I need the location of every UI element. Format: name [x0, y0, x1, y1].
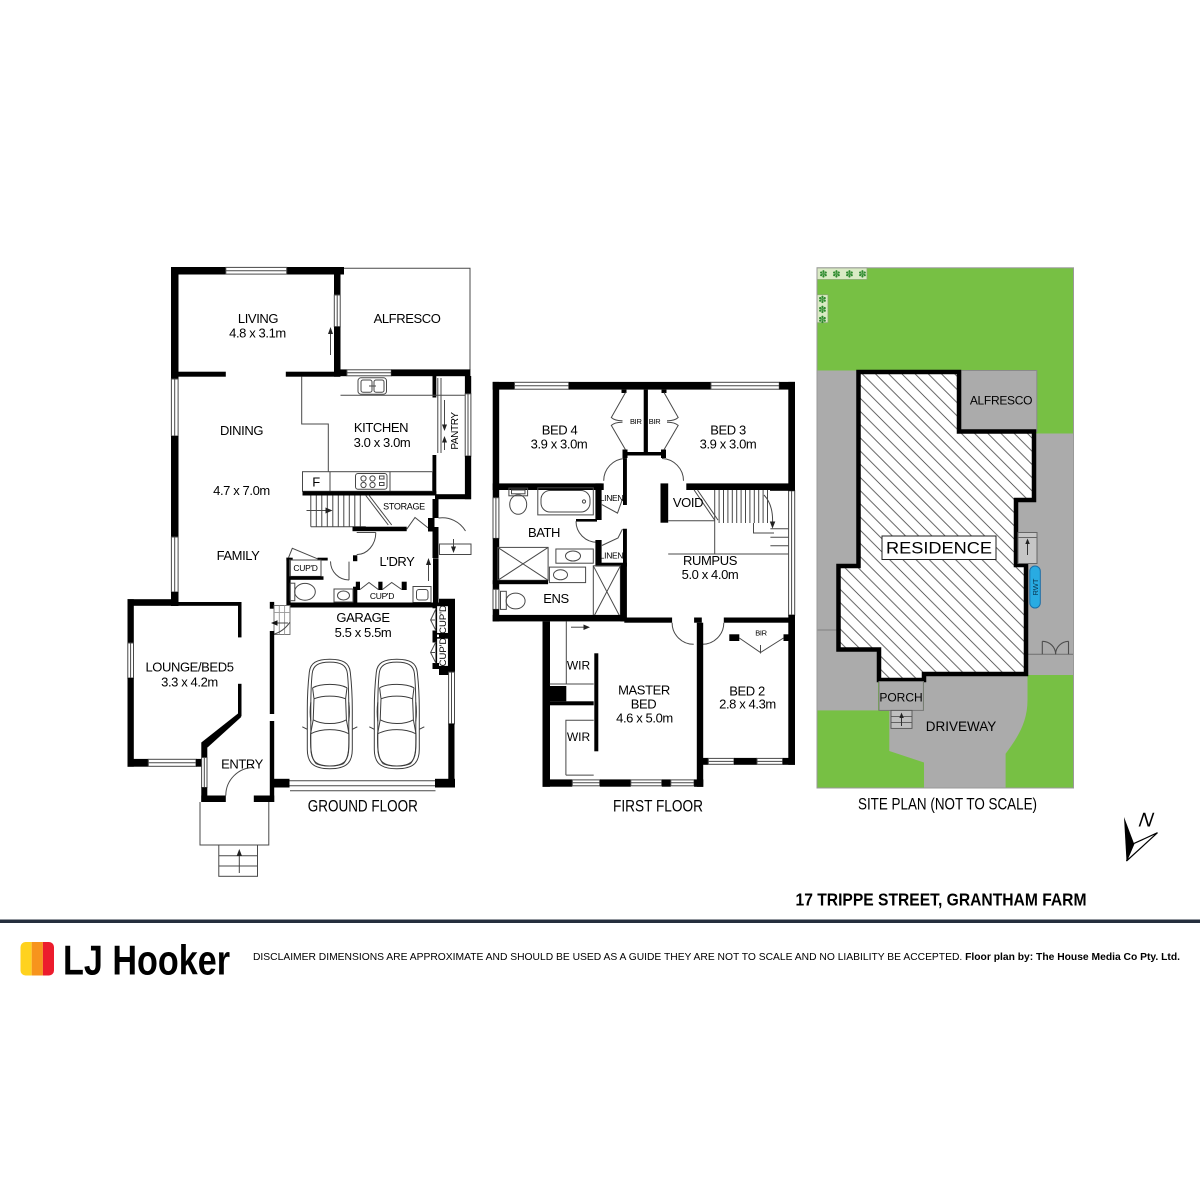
- svg-text:5.5 x 5.5m: 5.5 x 5.5m: [335, 625, 392, 640]
- svg-text:3.9 x 3.0m: 3.9 x 3.0m: [531, 437, 588, 452]
- svg-text:ALFRESCO: ALFRESCO: [374, 311, 441, 326]
- svg-text:BED: BED: [631, 697, 657, 712]
- svg-text:PANTRY: PANTRY: [450, 412, 461, 450]
- svg-text:MASTER: MASTER: [618, 683, 670, 698]
- svg-text:GARAGE: GARAGE: [336, 610, 390, 625]
- svg-text:DINING: DINING: [220, 423, 263, 438]
- svg-text:WIR: WIR: [567, 659, 591, 673]
- svg-text:RESIDENCE: RESIDENCE: [886, 539, 992, 558]
- svg-text:FAMILY: FAMILY: [217, 548, 261, 563]
- svg-text:4.8 x 3.1m: 4.8 x 3.1m: [229, 326, 286, 341]
- svg-text:LOUNGE/BED5: LOUNGE/BED5: [145, 660, 233, 675]
- svg-text:3.9 x 3.0m: 3.9 x 3.0m: [700, 437, 757, 452]
- svg-text:BIR: BIR: [630, 417, 642, 426]
- svg-text:BATH: BATH: [528, 525, 560, 540]
- svg-text:BIR: BIR: [649, 417, 661, 426]
- svg-text:L'DRY: L'DRY: [380, 554, 416, 569]
- svg-text:DRIVEWAY: DRIVEWAY: [926, 719, 997, 734]
- svg-text:STORAGE: STORAGE: [383, 502, 425, 512]
- svg-text:CUP'D: CUP'D: [370, 591, 394, 601]
- svg-text:✽: ✽: [845, 269, 853, 280]
- svg-text:BIR: BIR: [755, 629, 767, 638]
- svg-text:ENTRY: ENTRY: [221, 757, 264, 772]
- svg-text:✽: ✽: [832, 269, 840, 280]
- svg-text:PORCH: PORCH: [879, 691, 922, 705]
- svg-text:3.3 x 4.2m: 3.3 x 4.2m: [161, 675, 218, 690]
- svg-text:✽: ✽: [818, 315, 826, 326]
- svg-text:✽: ✽: [819, 269, 827, 280]
- svg-text:2.8 x 4.3m: 2.8 x 4.3m: [719, 697, 776, 712]
- svg-text:GROUND FLOOR: GROUND FLOOR: [308, 797, 418, 816]
- svg-text:3.0 x 3.0m: 3.0 x 3.0m: [354, 435, 411, 450]
- svg-text:VOID: VOID: [673, 495, 703, 510]
- svg-text:LJ Hooker: LJ Hooker: [63, 937, 230, 984]
- svg-text:ALFRESCO: ALFRESCO: [970, 394, 1032, 408]
- svg-text:✽: ✽: [858, 269, 866, 280]
- svg-text:LIVING: LIVING: [238, 311, 279, 326]
- svg-text:FIRST FLOOR: FIRST FLOOR: [613, 797, 703, 816]
- svg-text:RWT: RWT: [1031, 578, 1040, 595]
- svg-text:CUP'D: CUP'D: [438, 637, 449, 666]
- svg-text:CUP'D: CUP'D: [293, 563, 317, 573]
- svg-text:RUMPUS: RUMPUS: [683, 553, 738, 568]
- svg-text:17 TRIPPE STREET, GRANTHAM FAR: 17 TRIPPE STREET, GRANTHAM FARM: [796, 890, 1087, 910]
- svg-text:LINEN: LINEN: [600, 493, 624, 503]
- svg-text:5.0 x 4.0m: 5.0 x 4.0m: [682, 567, 739, 582]
- svg-text:CUP'D: CUP'D: [438, 605, 449, 634]
- svg-text:SITE PLAN (NOT TO SCALE): SITE PLAN (NOT TO SCALE): [858, 795, 1037, 814]
- svg-text:4.6 x 5.0m: 4.6 x 5.0m: [616, 711, 673, 726]
- svg-text:KITCHEN: KITCHEN: [354, 420, 408, 435]
- svg-text:WIR: WIR: [567, 730, 591, 744]
- svg-text:LINEN: LINEN: [600, 551, 624, 561]
- svg-text:DISCLAIMER DIMENSIONS ARE APPR: DISCLAIMER DIMENSIONS ARE APPROXIMATE AN…: [253, 952, 1180, 963]
- svg-text:BED 3: BED 3: [710, 423, 746, 438]
- svg-text:4.7 x 7.0m: 4.7 x 7.0m: [213, 483, 270, 498]
- svg-text:F: F: [312, 475, 320, 490]
- svg-text:BED 4: BED 4: [542, 423, 578, 438]
- svg-text:ENS: ENS: [543, 591, 569, 606]
